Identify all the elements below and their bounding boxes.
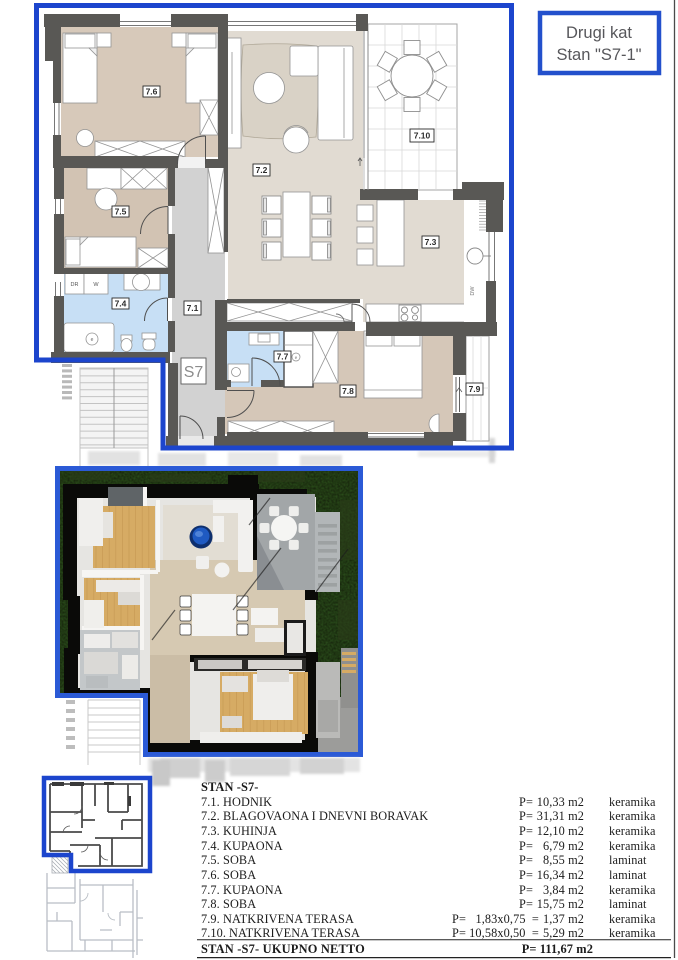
svg-text:7.8: 7.8: [342, 386, 354, 396]
svg-text:7.2: 7.2: [256, 165, 268, 175]
svg-text:W: W: [93, 282, 99, 288]
svg-text:7.5: 7.5: [115, 207, 127, 217]
svg-text:S7: S7: [184, 364, 204, 381]
svg-text:7.1: 7.1: [187, 303, 199, 313]
svg-text:e: e: [91, 337, 94, 343]
svg-text:Drugi kat: Drugi kat: [566, 24, 632, 42]
svg-text:7.10: 7.10: [414, 131, 431, 141]
svg-text:7.6: 7.6: [146, 87, 158, 97]
svg-text:Stan "S7-1": Stan "S7-1": [556, 46, 641, 64]
svg-text:DR: DR: [71, 282, 79, 288]
svg-text:7.7: 7.7: [277, 352, 289, 362]
svg-text:7.3: 7.3: [425, 237, 437, 247]
svg-text:7.4: 7.4: [115, 299, 127, 309]
svg-text:DW: DW: [470, 286, 476, 296]
svg-text:7.9: 7.9: [469, 384, 481, 394]
